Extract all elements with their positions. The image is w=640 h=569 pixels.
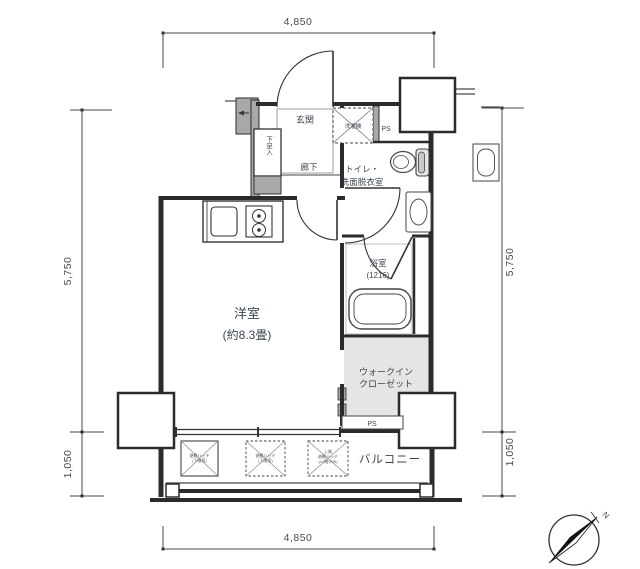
washroom-label-2: 洗面脱衣室: [341, 177, 384, 187]
dim-bottom-label: 4,850: [284, 532, 313, 544]
kitchen-counter: [203, 201, 283, 242]
railing-post: [166, 484, 179, 497]
dim-right-main-label: 5,750: [504, 248, 516, 277]
dim-left-balcony-label: 1,050: [62, 450, 74, 479]
living-room-label-2: (約8.3畳): [223, 327, 272, 342]
living-room-label-1: 洋室: [234, 306, 260, 321]
columns: [118, 78, 455, 448]
compass-north-label: N: [601, 510, 612, 521]
bathroom-label-2: (1216): [366, 271, 389, 280]
kitchen-stove: [246, 206, 272, 237]
pipe-space-top-label: PS: [381, 126, 391, 133]
toilet: [391, 149, 430, 176]
dim-right-balcony-label: 1,050: [504, 438, 516, 467]
wall-pier: [373, 106, 379, 142]
column-bottom-right: [399, 393, 455, 448]
hatch1-label-2: (下階用): [192, 457, 207, 463]
exterior-equipment: [473, 144, 499, 181]
hatch3-label-3: (14階のみ): [318, 458, 338, 464]
front-door-swing-arc: [277, 51, 333, 107]
wic-label-1: ウォークイン: [359, 367, 413, 377]
railing-post: [420, 484, 433, 497]
balcony-windows: [176, 427, 340, 437]
bath-door-leaf: [391, 237, 412, 279]
kitchen-sink: [211, 207, 237, 236]
bathroom-label-1: 浴室: [369, 258, 387, 268]
column-bottom-left: [118, 393, 174, 448]
balcony-label: バルコニー: [359, 453, 421, 466]
column-top-right: [400, 78, 455, 132]
floor-plan-svg: 4,850 4,850 5,750 1,050 5,750 1,050: [0, 0, 640, 569]
living-door-swing-arc: [297, 200, 337, 240]
wic-label-2: クローゼット: [359, 378, 413, 389]
pipe-space-bottom-label: PS: [367, 421, 377, 428]
washroom-label-1: トイレ・: [345, 164, 379, 174]
shoe-cabinet-base: [254, 176, 281, 194]
hatch2-label-2: (下階用): [258, 457, 273, 463]
compass: N: [549, 510, 611, 565]
compass-needle-light: [549, 517, 597, 563]
vanity-unit: [406, 192, 431, 232]
dim-top-label: 4,850: [284, 16, 313, 28]
floor-plan-canvas: 4,850 4,850 5,750 1,050 5,750 1,050: [0, 0, 640, 569]
washer-label: 洗濯機: [345, 122, 362, 130]
corridor-label: 廊下: [300, 162, 318, 172]
entrance-label: 玄関: [296, 114, 314, 125]
dim-left-main-label: 5,750: [62, 257, 74, 286]
